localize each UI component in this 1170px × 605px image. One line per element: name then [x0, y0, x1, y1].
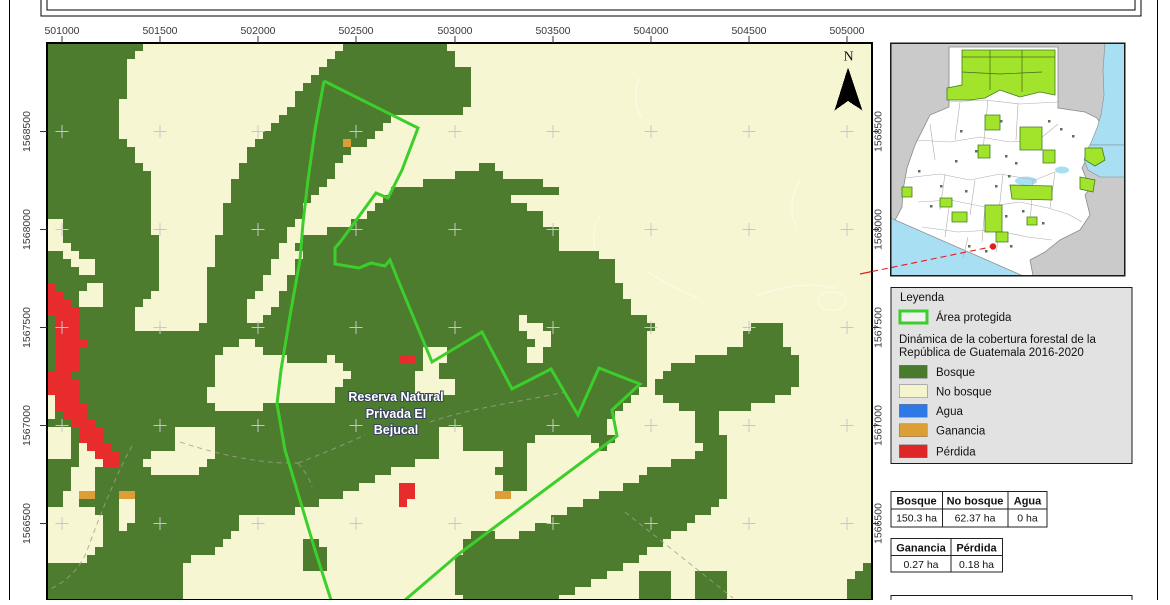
svg-text:Pérdida: Pérdida: [956, 543, 997, 555]
svg-text:0 ha: 0 ha: [1017, 513, 1038, 525]
svg-text:501000: 501000: [44, 25, 79, 37]
svg-text:503000: 503000: [437, 25, 472, 37]
svg-text:1568500: 1568500: [873, 111, 885, 152]
svg-text:503500: 503500: [535, 25, 570, 37]
svg-text:Reserva Natural: Reserva Natural: [348, 390, 443, 404]
svg-text:505000: 505000: [829, 25, 864, 37]
svg-text:1567000: 1567000: [873, 405, 885, 446]
svg-text:Privada El: Privada El: [366, 407, 426, 421]
svg-text:No bosque: No bosque: [936, 387, 992, 399]
svg-text:504500: 504500: [731, 25, 766, 37]
svg-text:1568000: 1568000: [873, 209, 885, 250]
svg-text:62.37 ha: 62.37 ha: [955, 513, 996, 525]
svg-text:502000: 502000: [240, 25, 275, 37]
svg-text:504000: 504000: [633, 25, 668, 37]
svg-text:1566500: 1566500: [873, 503, 885, 544]
svg-text:1568000: 1568000: [21, 209, 33, 250]
svg-text:1566500: 1566500: [21, 503, 33, 544]
svg-text:Ganancia: Ganancia: [936, 426, 986, 438]
svg-text:1567000: 1567000: [21, 405, 33, 446]
svg-text:Área protegida: Área protegida: [936, 311, 1012, 324]
svg-text:0.18 ha: 0.18 ha: [959, 559, 994, 571]
svg-text:1568500: 1568500: [21, 111, 33, 152]
svg-text:501500: 501500: [142, 25, 177, 37]
svg-text:1567500: 1567500: [873, 307, 885, 348]
svg-text:No bosque: No bosque: [947, 496, 1004, 508]
svg-text:Bosque: Bosque: [936, 367, 975, 379]
svg-text:1567500: 1567500: [21, 307, 33, 348]
svg-text:502500: 502500: [338, 25, 373, 37]
svg-text:Ganancia: Ganancia: [896, 543, 946, 555]
svg-text:Agua: Agua: [1014, 496, 1042, 508]
svg-text:Leyenda: Leyenda: [900, 292, 945, 304]
svg-text:N: N: [843, 50, 853, 65]
svg-text:Agua: Agua: [936, 406, 963, 418]
svg-text:Pérdida: Pérdida: [936, 447, 976, 459]
svg-text:0.27 ha: 0.27 ha: [903, 559, 938, 571]
svg-text:Dinámica de la cobertura fores: Dinámica de la cobertura forestal de la: [899, 334, 1096, 346]
svg-text:Bejucal: Bejucal: [374, 423, 418, 437]
svg-text:Bosque: Bosque: [896, 496, 936, 508]
svg-text:150.3 ha: 150.3 ha: [896, 513, 937, 525]
svg-text:República de Guatemala 2016-20: República de Guatemala 2016-2020: [899, 347, 1084, 359]
